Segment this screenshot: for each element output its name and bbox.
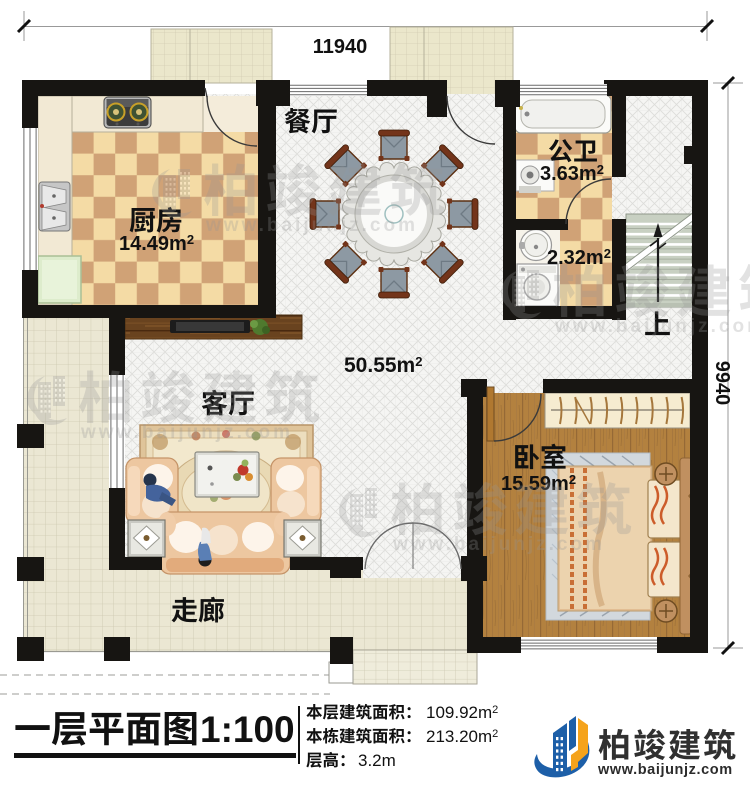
svg-text:11940: 11940 (313, 36, 368, 58)
svg-text:9940: 9940 (711, 361, 733, 406)
svg-text:3.63m2: 3.63m2 (540, 162, 604, 185)
svg-text:2.32m2: 2.32m2 (547, 246, 611, 269)
svg-text:50.55m2: 50.55m2 (344, 354, 422, 377)
svg-text:1:100: 1:100 (200, 709, 295, 750)
svg-text:213.20m2: 213.20m2 (426, 727, 498, 746)
svg-text:109.92m2: 109.92m2 (426, 703, 498, 722)
svg-text:3.2m: 3.2m (358, 751, 396, 770)
svg-text:14.49m2: 14.49m2 (119, 232, 194, 255)
svg-text:www.baijunjz.com: www.baijunjz.com (597, 762, 733, 778)
